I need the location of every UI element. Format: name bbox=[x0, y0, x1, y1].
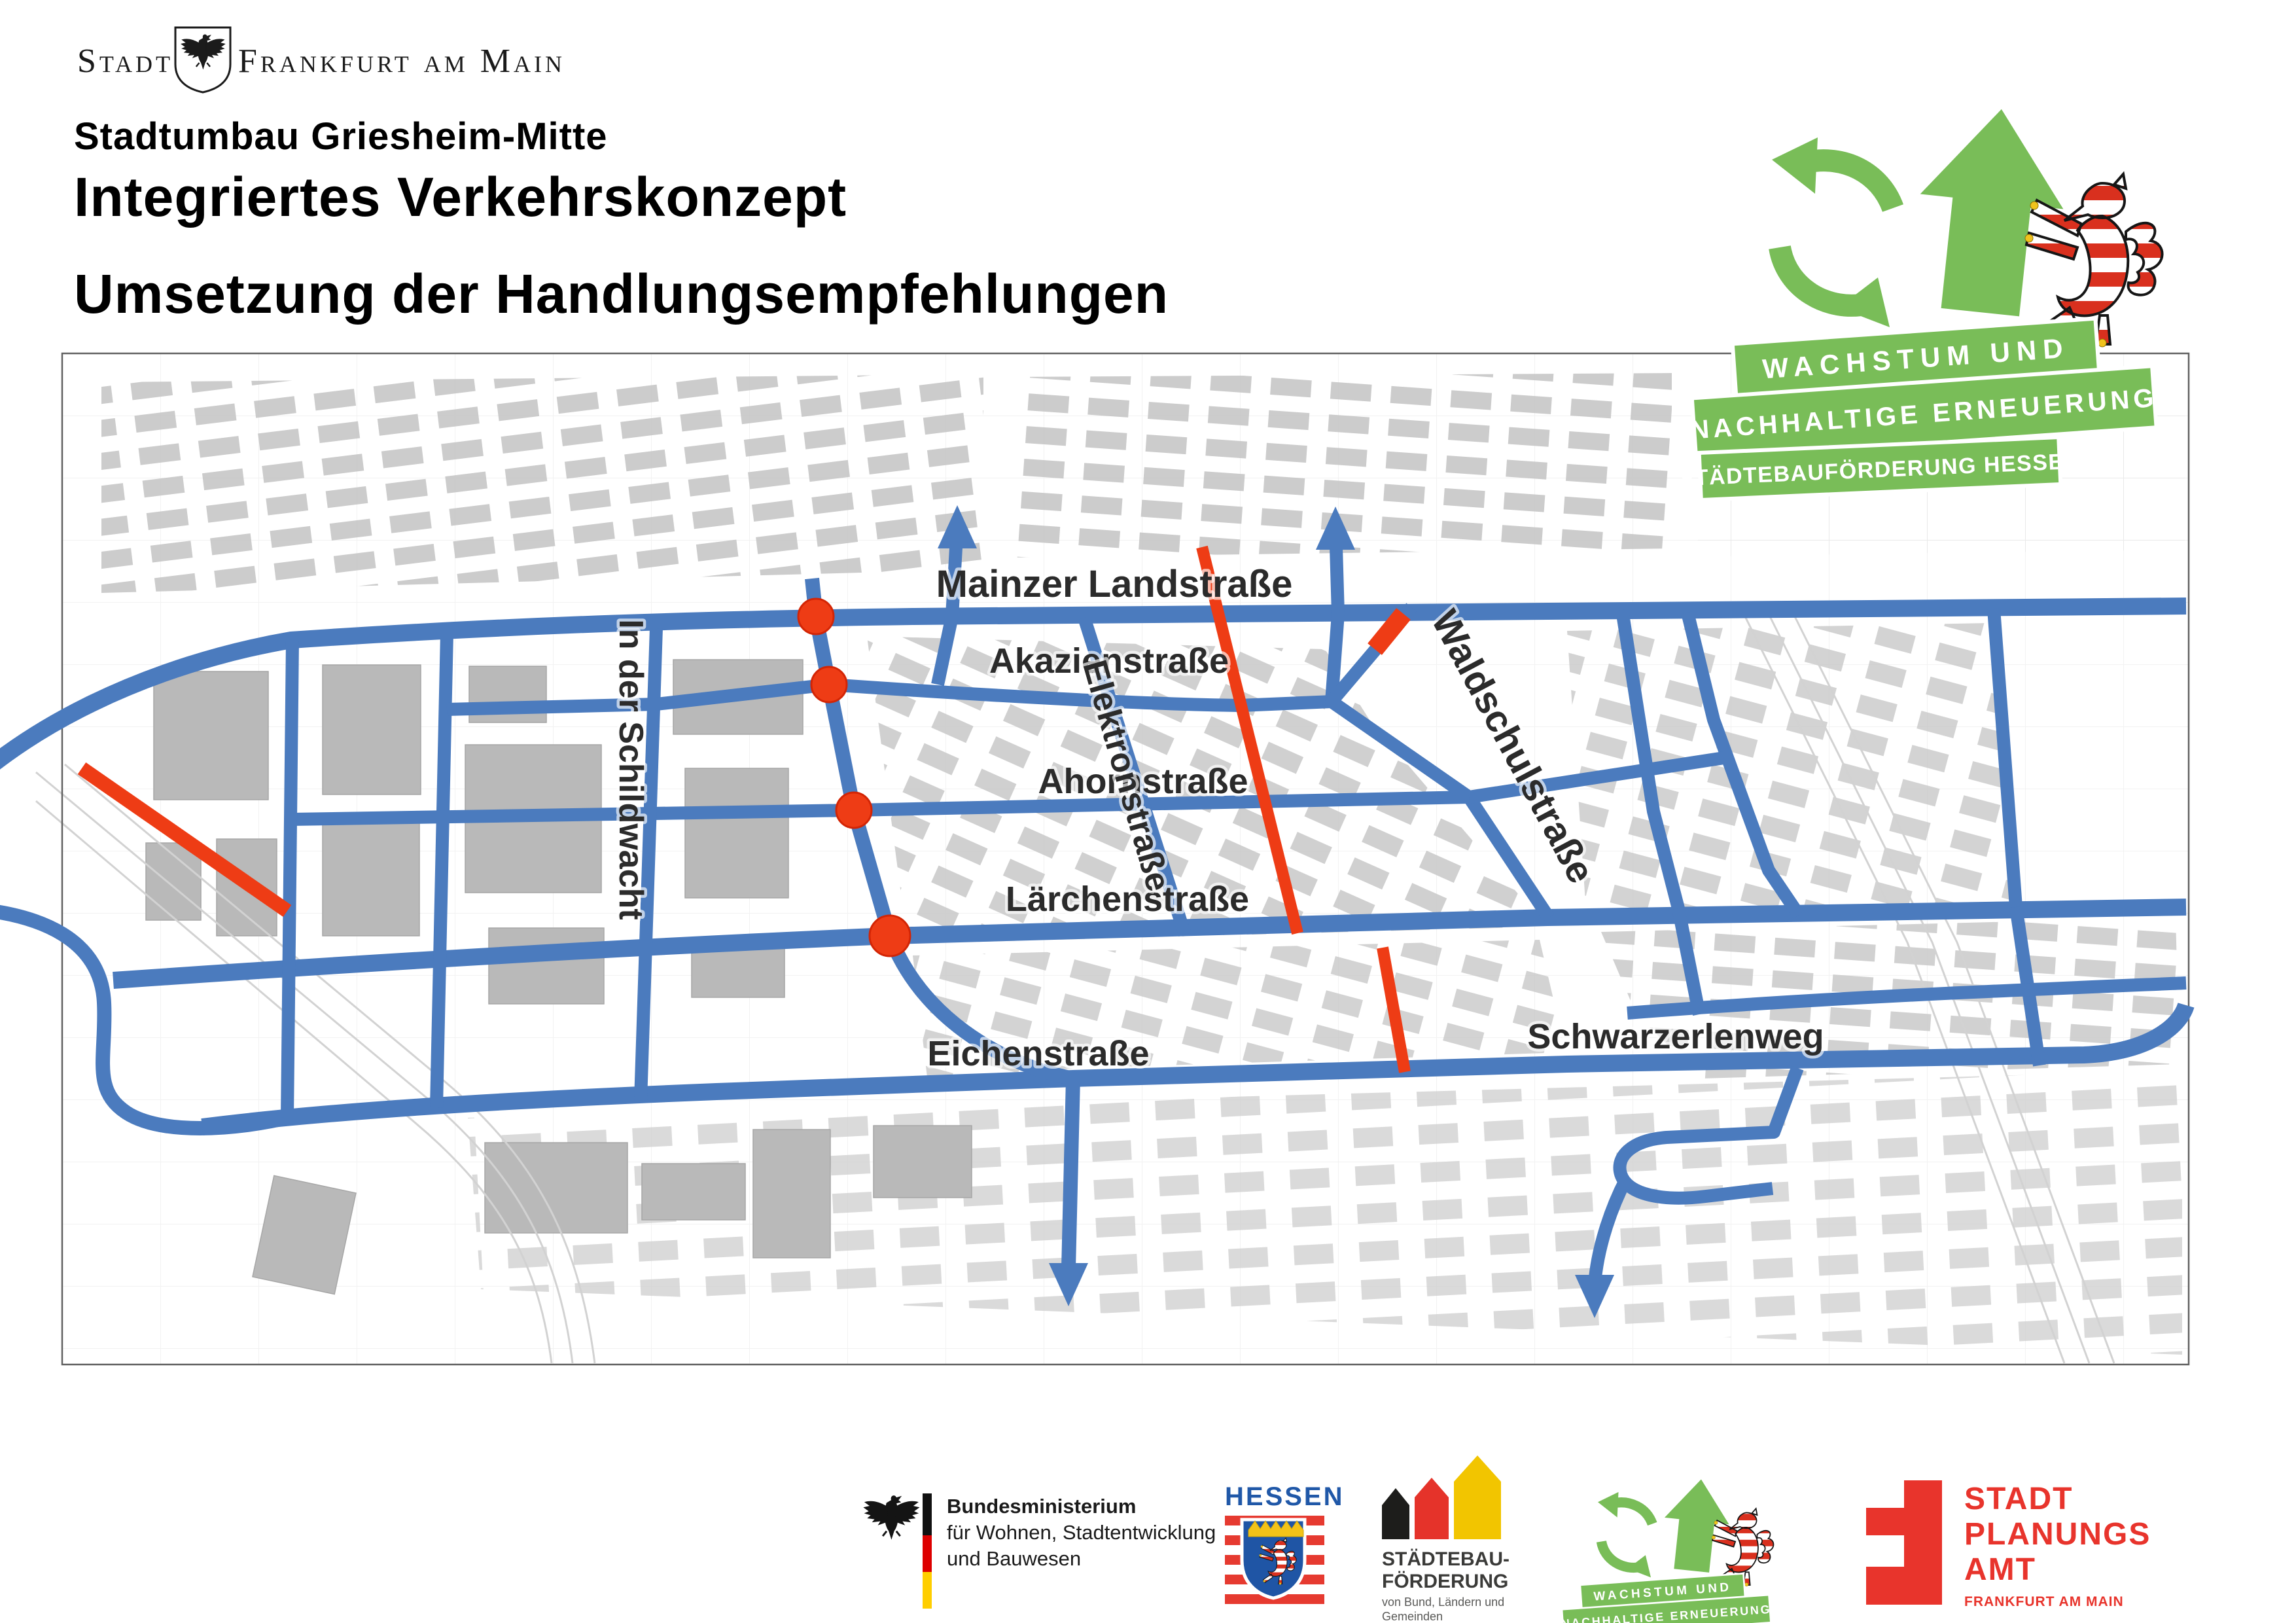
footer-logos: Bundesministerium für Wohnen, Stadtentwi… bbox=[864, 1455, 2151, 1623]
staedtebau-line2: FÖRDERUNG bbox=[1382, 1571, 1508, 1592]
street-label-eichenstrasse: Eichenstraße bbox=[927, 1034, 1149, 1073]
staedtebau-sub1: von Bund, Ländern und bbox=[1382, 1596, 1504, 1609]
measure-dot bbox=[811, 667, 847, 702]
measure-dot bbox=[870, 916, 910, 956]
city-logo-name: Frankfurt am Main bbox=[238, 43, 565, 80]
street-label-in-der-schildwacht: In der Schildwacht bbox=[612, 619, 650, 919]
measure-dot bbox=[798, 599, 834, 634]
staedtebau-sub2: Gemeinden bbox=[1382, 1610, 1443, 1623]
bmwsb-line1: Bundesministerium bbox=[947, 1495, 1136, 1518]
bmwsb-line2: für Wohnen, Stadtentwicklung bbox=[947, 1521, 1216, 1544]
city-logo-prefix: Stadt bbox=[77, 43, 173, 80]
bmwsb-logo: Bundesministerium für Wohnen, Stadtentwi… bbox=[864, 1493, 1216, 1609]
bmwsb-line3: und Bauwesen bbox=[947, 1547, 1081, 1570]
spa-line1: STADT bbox=[1964, 1482, 2073, 1516]
poster-canvas: WACHSTUM UND NACHHALTIGE ERNEUERUNG STÄD… bbox=[0, 0, 2296, 1623]
city-logo: Stadt Frankfurt am Main bbox=[77, 27, 565, 92]
street-label-mainzer-landstrasse: Mainzer Landstraße bbox=[936, 563, 1293, 605]
header: Stadt Frankfurt am Main Stadtumbau Gries… bbox=[74, 27, 1169, 325]
hessen-logo: HESSEN bbox=[1225, 1482, 1345, 1604]
poster-title: Integriertes Verkehrskonzept bbox=[74, 166, 847, 228]
spa-glyph-icon bbox=[1866, 1480, 1942, 1605]
street-label-schwarzerlenweg: Schwarzerlenweg bbox=[1527, 1017, 1824, 1056]
poster-page: WACHSTUM UND NACHHALTIGE ERNEUERUNG STÄD… bbox=[0, 0, 2296, 1623]
poster-subtitle: Stadtumbau Griesheim-Mitte bbox=[74, 115, 608, 158]
staedtebau-line1: STÄDTEBAU- bbox=[1382, 1548, 1510, 1570]
street-label-laerchenstrasse: Lärchenstraße bbox=[1006, 880, 1249, 919]
program-logo-small bbox=[1555, 1476, 1773, 1623]
spa-sub: FRANKFURT AM MAIN bbox=[1964, 1594, 2124, 1609]
hessen-shield-icon bbox=[1242, 1520, 1305, 1598]
federal-eagle-icon bbox=[864, 1495, 919, 1539]
spa-line2: PLANUNGS bbox=[1964, 1517, 2151, 1552]
hessen-label: HESSEN bbox=[1225, 1482, 1345, 1511]
traffic-concept-map: Mainzer Landstraße Akazienstraße Ahornst… bbox=[0, 353, 2189, 1364]
spa-line3: AMT bbox=[1964, 1552, 2036, 1587]
stadtplanungsamt-logo: STADT PLANUNGS AMT FRANKFURT AM MAIN bbox=[1866, 1480, 2151, 1609]
poster-subject: Umsetzung der Handlungsempfehlungen bbox=[74, 263, 1169, 325]
houses-icon bbox=[1382, 1455, 1501, 1539]
staedtebaufoerderung-logo: STÄDTEBAU- FÖRDERUNG von Bund, Ländern u… bbox=[1382, 1455, 1510, 1623]
measure-dot bbox=[836, 793, 872, 828]
federal-flag-bar bbox=[923, 1493, 932, 1609]
